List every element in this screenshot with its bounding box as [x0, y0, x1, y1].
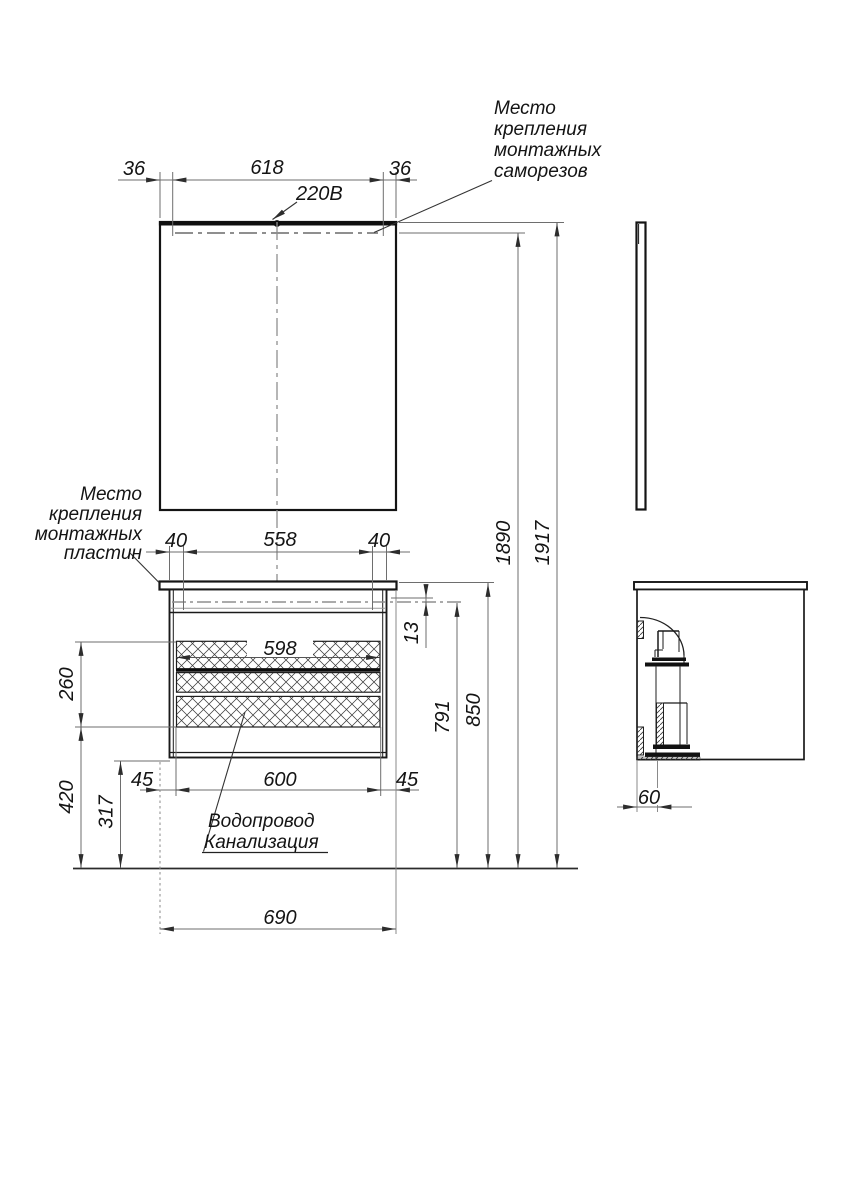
dim-mirror-screw-span: 618: [250, 157, 283, 179]
plates-note-line1: Место: [80, 484, 142, 505]
plumbing-note-line2: Канализация: [204, 832, 319, 853]
dim-mount-height: 1890: [493, 521, 515, 566]
drawing-page: 36 618 36 40 558 40 598: [0, 0, 849, 1200]
mounting-plate-upper: [637, 621, 644, 639]
dim-cabinet-width-value: 690: [263, 907, 296, 929]
dim-counter-height: 850: [463, 693, 485, 726]
screws-note-line3: монтажных: [494, 140, 603, 161]
side-view: [634, 223, 807, 761]
dim-plate-offset-left: 40: [165, 530, 187, 552]
dim-floor-to-cabinet: 317: [96, 794, 118, 828]
dim-front-offset-left: 45: [131, 769, 154, 791]
dim-mirror-offset-left: 36: [123, 158, 146, 180]
drawer-back-section: [657, 703, 664, 745]
dim-plate-offset-right: 40: [368, 530, 390, 552]
dim-carcass-top-height: 791: [432, 700, 454, 733]
dim-cabinet-width: 690: [160, 907, 396, 929]
technical-drawing: 36 618 36 40 558 40 598: [0, 0, 849, 1200]
cabinet-side: [634, 582, 807, 760]
power-callout: 220В: [273, 183, 343, 220]
dim-front-width: 600: [263, 769, 296, 791]
dim-plate-drop: 13: [401, 622, 423, 644]
plates-note-line4: пластин: [64, 543, 143, 564]
screws-note-line1: Место: [494, 98, 556, 119]
plates-note-line3: монтажных: [35, 524, 144, 545]
dim-hatch-height: 260: [56, 667, 78, 701]
mirror-side: [637, 223, 646, 510]
dim-wall-offset-value: 60: [638, 787, 660, 809]
front-view: [159, 220, 462, 757]
power-label: 220В: [295, 183, 343, 205]
plates-note: Место крепления монтажных пластин: [35, 484, 159, 583]
plates-note-line2: крепления: [49, 504, 142, 525]
countertop-side: [634, 582, 807, 590]
dim-total-height: 1917: [532, 520, 554, 565]
countertop-front: [160, 582, 397, 590]
dim-left-verticals: 260 420 317: [56, 642, 176, 868]
mirror-front: [159, 220, 397, 510]
screws-note-line4: саморезов: [494, 161, 588, 182]
plumbing-note-line1: Водопровод: [208, 811, 314, 832]
dim-plate-span: 558: [263, 529, 296, 551]
dim-drawer-inner-width: 598: [263, 638, 296, 660]
cabinet-front: [160, 582, 463, 758]
bottom-edge-section: [637, 757, 700, 760]
screws-note-line2: крепления: [494, 119, 587, 140]
dim-clearance-height: 420: [56, 780, 78, 813]
dim-mirror-offset-right: 36: [389, 158, 412, 180]
mounting-plate-lower: [637, 727, 644, 755]
dim-front-offset-right: 45: [396, 769, 419, 791]
dim-wall-offset: 60: [617, 760, 692, 812]
